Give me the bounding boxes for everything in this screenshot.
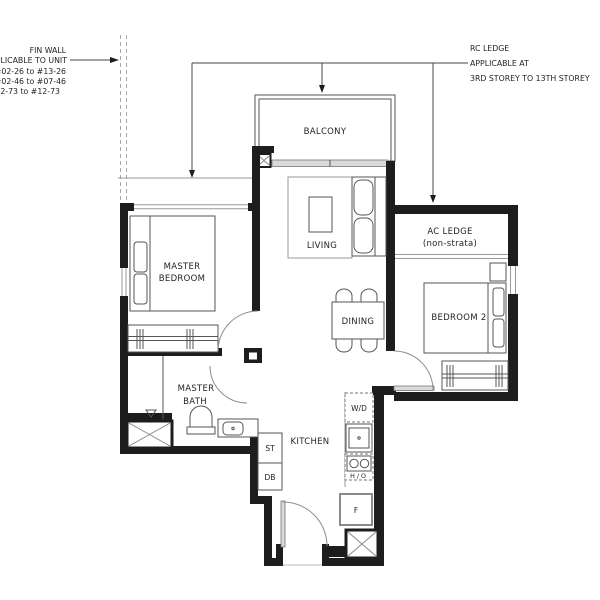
door-frame-block (244, 348, 262, 363)
master-bath-label-2: BATH (183, 397, 207, 407)
db-closet: DB (258, 463, 282, 490)
mbr-side-window (120, 268, 128, 296)
down-arrow-icon (430, 195, 436, 203)
rc-ledge-note-line1: RC LEDGE (470, 44, 509, 53)
balcony-label: BALCONY (304, 127, 347, 137)
dining-label: DINING (342, 317, 375, 327)
sliding-door (272, 160, 388, 167)
down-arrow-icon (189, 170, 195, 178)
wardrobe (128, 325, 218, 352)
pillow (493, 288, 504, 316)
fridge: F (340, 494, 372, 525)
kitchen-label: KITCHEN (291, 437, 330, 447)
fin-wall-note-line5: #02-73 to #12-73 (0, 87, 60, 96)
down-arrow-icon (319, 85, 325, 93)
chair (361, 339, 377, 352)
chair (336, 339, 352, 352)
kitchen: KITCHEN W/D H / O F ST DB (258, 392, 378, 558)
entry-door (281, 501, 327, 547)
ac-ledge-label-1: AC LEDGE (427, 227, 472, 237)
fin-wall-note-line1: FIN WALL (30, 46, 67, 55)
sofa (352, 177, 386, 256)
kitchen-sink (346, 424, 372, 452)
rc-ledge-note-line3: 3RD STOREY TO 13TH STOREY (470, 74, 590, 83)
aircon-ledge-box (127, 421, 172, 448)
living-label: LIVING (307, 241, 337, 251)
aircon-ledge-box (346, 530, 378, 558)
floor-plan-page: FIN WALL APPLICABLE TO UNIT #02-26 to #1… (0, 0, 600, 600)
bedside-table (490, 263, 506, 281)
pillow (134, 242, 147, 272)
master-bath-door-arc (210, 366, 247, 403)
floor-plan-svg: FIN WALL APPLICABLE TO UNIT #02-26 to #1… (0, 0, 600, 600)
master-bath-label-1: MASTER (178, 384, 215, 394)
bedroom2-door-leaf (394, 386, 434, 391)
hob: H / O (345, 454, 373, 480)
vanity-sink (218, 419, 258, 437)
fin-wall-note: FIN WALL APPLICABLE TO UNIT #02-26 to #1… (0, 46, 119, 96)
living-room: LIVING (288, 177, 386, 258)
entry-door-arc (283, 502, 327, 546)
ac-ledge-label-2: (non-strata) (423, 239, 477, 249)
pillow (493, 319, 504, 347)
washer-dryer: W/D (345, 393, 373, 422)
bedroom2-label: BEDROOM 2 (431, 313, 486, 323)
fin-wall-note-line3: #02-26 to #13-26 (0, 67, 66, 76)
washer-dryer-label: W/D (351, 404, 367, 413)
fin-wall-note-line2: APPLICABLE TO UNIT (0, 56, 67, 65)
pillow (134, 274, 147, 304)
master-bedroom: MASTER BEDROOM (128, 216, 258, 352)
store-closet: ST (258, 433, 282, 463)
master-bedroom-label-2: BEDROOM (159, 274, 205, 284)
ac-ledge: AC LEDGE (non-strata) (423, 227, 477, 249)
chair (361, 289, 377, 302)
store-label: ST (265, 444, 275, 453)
chair (336, 289, 352, 302)
right-arrow-icon (110, 57, 119, 63)
wardrobe (442, 361, 508, 390)
entry-door-leaf (281, 501, 285, 547)
bedroom2-side-window (508, 266, 518, 294)
hob-label: H / O (350, 473, 366, 480)
rc-ledge-note-line2: APPLICABLE AT (470, 59, 529, 68)
bedroom2-door-arc (394, 351, 433, 390)
master-bedroom-door-arc (218, 311, 258, 351)
bedroom2: BEDROOM 2 (394, 263, 508, 391)
coffee-table (309, 197, 332, 232)
master-bedroom-label-1: MASTER (164, 262, 201, 272)
fridge-label: F (354, 506, 358, 515)
fin-wall-note-line4: #02-46 to #07-46 (0, 77, 66, 86)
db-label: DB (265, 473, 276, 482)
dining: DINING (332, 289, 384, 352)
toilet (187, 406, 215, 434)
master-bath: MASTER BATH (127, 356, 258, 448)
